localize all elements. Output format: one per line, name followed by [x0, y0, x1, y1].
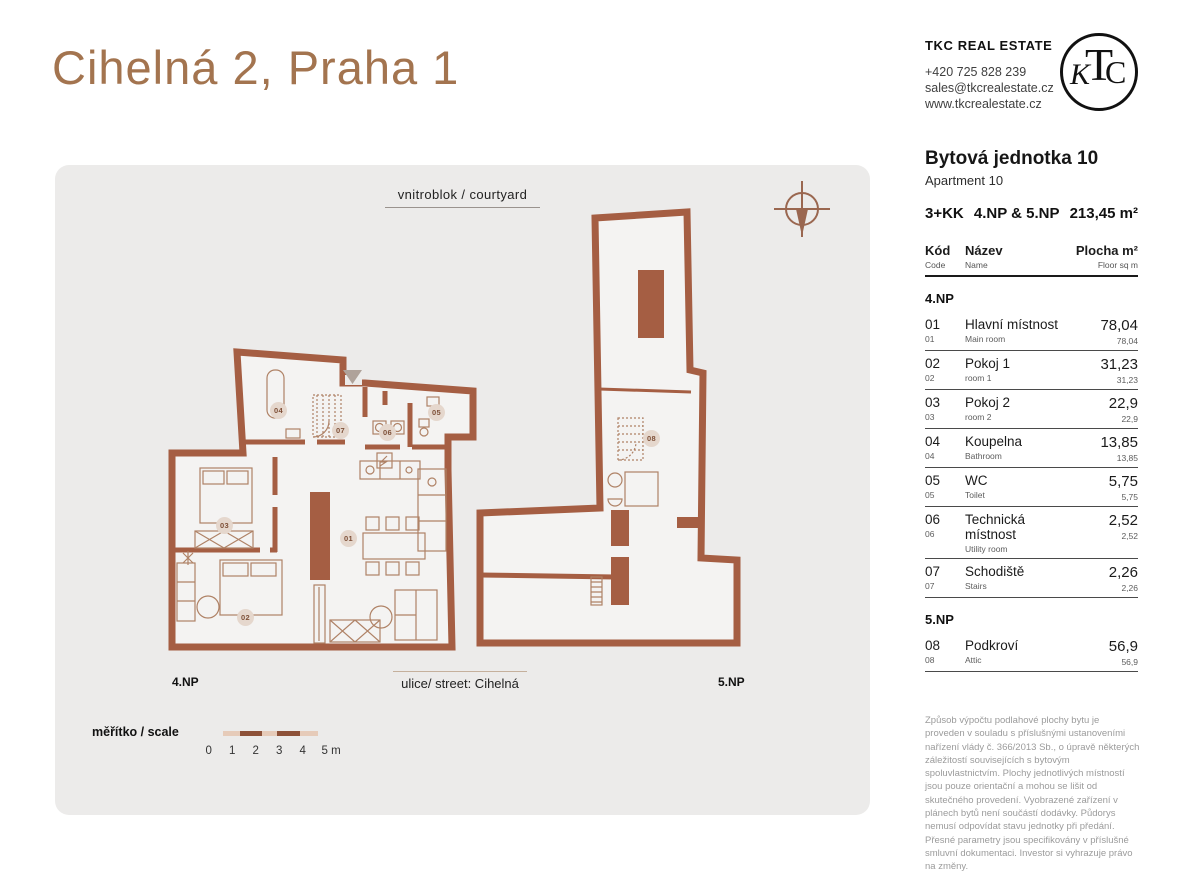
- header-area-cz: Plocha m²: [1068, 243, 1138, 258]
- unit-total-area: 213,45 m²: [1070, 205, 1138, 222]
- room-badge-06: 06: [379, 424, 396, 441]
- logo-letter-k: K: [1070, 60, 1090, 90]
- scale-tick: 0: [197, 745, 221, 757]
- room-badge-03: 03: [216, 517, 233, 534]
- room-badge-08: 08: [643, 430, 660, 447]
- unit-spec-row: 3+KK 4.NP & 5.NP 213,45 m²: [925, 205, 1138, 222]
- floorplan-drawing: [55, 165, 870, 815]
- floor-label-4np: 4.NP: [172, 675, 199, 689]
- header-area-en: Floor sq m: [1068, 260, 1138, 270]
- floorplan-5np: [480, 212, 737, 643]
- chimney: [638, 270, 664, 338]
- courtyard-label: vnitroblok / courtyard: [385, 187, 540, 208]
- header-name-cz: Název: [965, 243, 1068, 258]
- table-row: 0202Pokoj 1room 131,2331,23: [925, 351, 1138, 390]
- street-label: ulice/ street: Cihelná: [393, 671, 527, 691]
- unit-layout: 3+KK: [925, 205, 964, 222]
- agency-website[interactable]: www.tkcrealestate.cz: [925, 96, 1065, 112]
- unit-title-cz: Bytová jednotka 10: [925, 148, 1138, 170]
- logo-letter-c: C: [1105, 56, 1126, 88]
- floor-section-label: 5.NP: [925, 612, 1138, 627]
- room-badge-02: 02: [237, 609, 254, 626]
- agency-logo: T K C: [1060, 33, 1138, 111]
- table-row: 0505WCToilet5,755,75: [925, 468, 1138, 507]
- scale-tick: 3: [268, 745, 292, 757]
- agency-name: TKC REAL ESTATE: [925, 38, 1065, 53]
- scale-tick: 4: [291, 745, 315, 757]
- area-table-header: Kód Code Název Name Plocha m² Floor sq m: [925, 243, 1138, 277]
- room-badge-07: 07: [332, 422, 349, 439]
- table-row: 0606Technická místnostUtility room2,522,…: [925, 507, 1138, 559]
- compass-icon: [774, 181, 830, 237]
- page-title: Cihelná 2, Praha 1: [52, 40, 459, 95]
- table-row: 0707SchodištěStairs2,262,26: [925, 559, 1138, 598]
- agency-email[interactable]: sales@tkcrealestate.cz: [925, 80, 1065, 96]
- header-code-en: Code: [925, 260, 965, 270]
- header-code-cz: Kód: [925, 243, 965, 258]
- scale-ticks: 0 1 2 3 4 5 m: [197, 745, 349, 757]
- scale-tick: 1: [221, 745, 245, 757]
- agency-contact-block: TKC REAL ESTATE +420 725 828 239 sales@t…: [925, 38, 1065, 112]
- table-row: 0808PodkrovíAttic56,956,9: [925, 633, 1138, 672]
- room-badge-01: 01: [340, 530, 357, 547]
- scale-bar: [223, 731, 318, 736]
- unit-details-column: Bytová jednotka 10 Apartment 10 3+KK 4.N…: [925, 148, 1138, 672]
- unit-floors: 4.NP & 5.NP: [974, 205, 1060, 222]
- area-table-body: 4.NP0101Hlavní místnostMain room78,0478,…: [925, 291, 1138, 672]
- unit-title-en: Apartment 10: [925, 173, 1138, 188]
- disclaimer-text: Způsob výpočtu podlahové plochy bytu je …: [925, 714, 1141, 874]
- scale-label: měřítko / scale: [92, 725, 179, 739]
- agency-phone: +420 725 828 239: [925, 64, 1065, 80]
- scale-tick: 2: [244, 745, 268, 757]
- floorplan-panel: vnitroblok / courtyard ulice/ street: Ci…: [55, 165, 870, 815]
- header-name-en: Name: [965, 260, 1068, 270]
- room-badge-05: 05: [428, 404, 445, 421]
- floor-label-5np: 5.NP: [718, 675, 745, 689]
- scale-tick: 5 m: [315, 745, 349, 757]
- table-row: 0303Pokoj 2room 222,922,9: [925, 390, 1138, 429]
- floorplan-4np: [172, 352, 473, 647]
- floor-section-label: 4.NP: [925, 291, 1138, 306]
- table-row: 0404KoupelnaBathroom13,8513,85: [925, 429, 1138, 468]
- room-badge-04: 04: [270, 402, 287, 419]
- table-row: 0101Hlavní místnostMain room78,0478,04: [925, 312, 1138, 351]
